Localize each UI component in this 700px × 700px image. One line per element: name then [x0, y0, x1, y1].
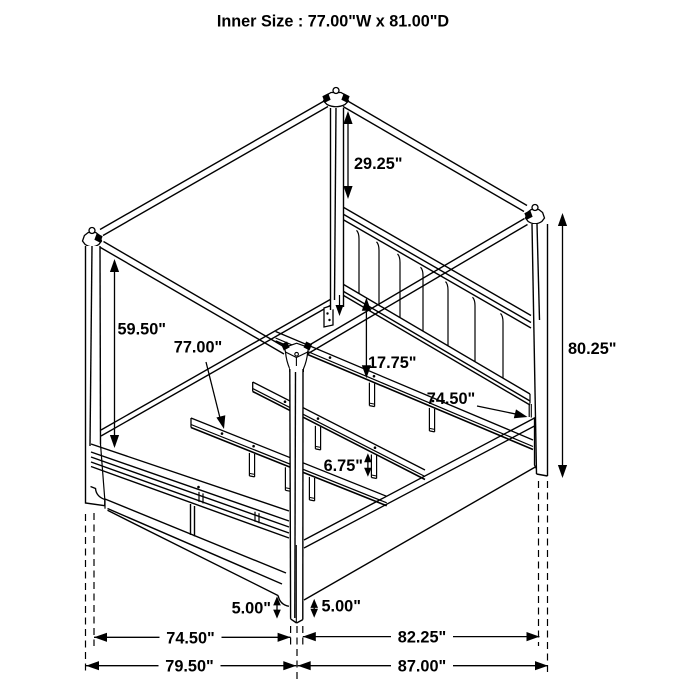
svg-text:17.75": 17.75" [368, 354, 416, 372]
svg-text:82.25": 82.25" [398, 629, 446, 647]
svg-text:29.25": 29.25" [354, 155, 402, 173]
svg-text:74.50": 74.50" [427, 390, 475, 408]
svg-text:5.00": 5.00" [232, 600, 271, 618]
svg-text:77.00": 77.00" [174, 339, 222, 357]
svg-text:79.50": 79.50" [165, 658, 213, 676]
svg-text:74.50": 74.50" [166, 629, 214, 647]
svg-text:80.25": 80.25" [568, 340, 616, 358]
svg-text:5.00": 5.00" [322, 598, 361, 616]
svg-text:59.50": 59.50" [118, 321, 166, 339]
svg-text:87.00": 87.00" [398, 658, 446, 676]
svg-text:Inner Size : 77.00"W x 81.00"D: Inner Size : 77.00"W x 81.00"D [217, 13, 449, 31]
svg-text:6.75": 6.75" [324, 457, 363, 475]
